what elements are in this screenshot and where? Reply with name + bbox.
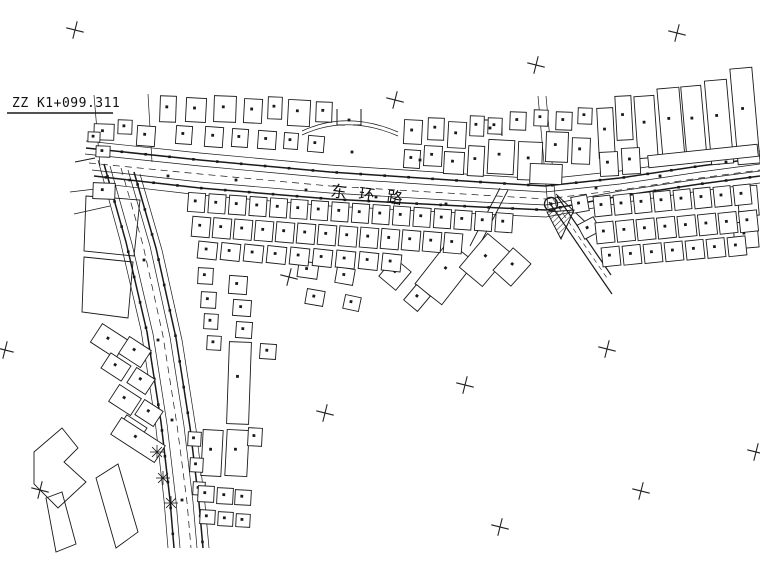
building-footprint — [228, 275, 247, 294]
building — [423, 146, 442, 167]
spot-dot — [595, 187, 598, 190]
building-dot — [92, 135, 95, 138]
building-dot — [440, 216, 443, 219]
curb-dot — [623, 176, 626, 179]
curb-dot — [288, 167, 291, 170]
building — [534, 110, 549, 126]
building-footprint — [621, 148, 640, 175]
building-dot — [282, 229, 285, 232]
building-footprint — [227, 342, 252, 425]
building — [413, 207, 431, 227]
curb-dot — [145, 326, 148, 329]
building-dot — [387, 236, 390, 239]
curb-dot — [646, 173, 649, 176]
building — [443, 151, 464, 174]
survey-cross — [596, 338, 618, 360]
building-footprint — [601, 246, 621, 267]
building — [233, 219, 253, 240]
building-dot — [690, 117, 693, 120]
curb-dot — [169, 309, 172, 312]
building-dot — [715, 114, 718, 117]
building-dot — [288, 138, 291, 141]
building-footprint — [296, 223, 316, 244]
building-footprint — [599, 152, 618, 177]
building-dot — [303, 231, 306, 234]
building-dot — [305, 267, 308, 270]
building-footprint — [231, 128, 248, 147]
building-dot — [603, 128, 606, 131]
building — [422, 231, 442, 252]
building-footprint — [392, 206, 410, 226]
building — [593, 195, 612, 217]
building-dot — [378, 212, 381, 215]
curb-dot — [407, 176, 410, 179]
cross-arm — [747, 450, 760, 454]
spot-dot — [375, 196, 378, 199]
curb-dot — [157, 258, 160, 261]
building — [254, 220, 274, 241]
survey-cross — [745, 441, 760, 463]
building-dot — [101, 129, 104, 132]
spot-dot — [167, 175, 170, 178]
building — [338, 226, 358, 247]
spot-dot — [659, 175, 662, 178]
building-dot — [240, 226, 243, 229]
building-footprint — [175, 125, 192, 144]
building — [227, 342, 252, 425]
building — [467, 146, 485, 177]
cad-plan-canvas: ZZ K1+099.311 东 环 路 — [0, 0, 760, 565]
building — [621, 148, 640, 175]
building-footprint — [208, 194, 226, 214]
building-dot — [214, 201, 217, 204]
building-dot — [313, 141, 316, 144]
building — [392, 206, 410, 226]
building-dot — [741, 107, 744, 110]
building — [643, 243, 663, 264]
building-dot — [492, 123, 495, 126]
building-footprint — [495, 213, 513, 233]
building-footprint — [372, 205, 390, 225]
building-dot — [143, 133, 146, 136]
building — [236, 514, 251, 528]
building-dot — [342, 273, 345, 276]
building-footprint — [191, 216, 211, 237]
building-footprint — [351, 203, 369, 223]
building-footprint — [422, 231, 442, 252]
building — [447, 122, 466, 149]
building-footprint — [269, 198, 287, 218]
curb-dot — [144, 208, 147, 211]
building-dot — [498, 153, 501, 156]
building-footprint — [305, 289, 325, 307]
building — [656, 216, 676, 239]
building-footprint — [413, 207, 431, 227]
curb-dot — [164, 455, 167, 458]
building-dot — [399, 213, 402, 216]
building — [733, 184, 752, 206]
building-footprint — [428, 118, 445, 141]
building-footprint — [403, 120, 422, 145]
traffic-island-hatch — [547, 210, 574, 239]
building — [359, 227, 379, 248]
building-dot — [739, 192, 742, 195]
building-dot — [297, 253, 300, 256]
building-footprint — [228, 195, 246, 215]
building-footprint — [447, 122, 466, 149]
building — [191, 216, 211, 237]
building — [433, 209, 451, 229]
building-footprint — [403, 149, 420, 168]
building-footprint — [335, 250, 356, 269]
building-footprint — [657, 87, 685, 161]
curb-dot — [172, 533, 175, 536]
building-dot — [209, 448, 212, 451]
building — [335, 250, 356, 269]
building — [218, 512, 234, 527]
building — [204, 126, 223, 147]
spot-dot — [489, 127, 492, 130]
building-footprint — [443, 232, 463, 253]
building-dot — [101, 188, 104, 191]
road-name-char: 环 — [357, 184, 376, 205]
building-dot — [324, 232, 327, 235]
curb-dot — [161, 429, 164, 432]
building — [657, 87, 685, 161]
building — [713, 186, 732, 208]
building-dot — [222, 105, 225, 108]
building-dot — [699, 195, 702, 198]
building-footprint — [597, 108, 616, 159]
building-dot — [366, 235, 369, 238]
cross-arm — [0, 348, 14, 352]
building-dot — [515, 118, 518, 121]
building-dot — [602, 229, 605, 232]
building-dot — [619, 201, 622, 204]
building-dot — [240, 495, 243, 498]
building-footprint — [316, 102, 333, 123]
building-footprint — [656, 216, 676, 239]
curb-dot — [216, 160, 219, 163]
building-footprint — [530, 163, 563, 184]
building-dot — [203, 491, 206, 494]
building-footprint — [310, 201, 328, 221]
building-dot — [745, 218, 748, 221]
building — [428, 118, 445, 141]
survey-cross — [454, 374, 476, 396]
building — [257, 130, 276, 149]
building-footprint — [738, 210, 758, 233]
building-dot — [255, 203, 258, 206]
road-edge-line — [74, 206, 110, 214]
curb-dot — [144, 153, 147, 156]
building — [474, 211, 492, 231]
curb-dot — [182, 386, 185, 389]
building-dot — [343, 256, 346, 259]
building-footprint — [677, 215, 697, 238]
building — [331, 202, 349, 222]
building-dot — [643, 226, 646, 229]
spot-dot — [348, 119, 351, 122]
building — [207, 336, 222, 351]
building-dot — [223, 516, 226, 519]
building — [615, 96, 633, 141]
building-footprint — [433, 209, 451, 229]
building — [613, 194, 632, 216]
building-dot — [345, 233, 348, 236]
building — [232, 299, 251, 316]
building-dot — [349, 300, 352, 303]
curb-dot — [176, 184, 179, 187]
building-footprint — [401, 230, 421, 251]
curb-dot — [178, 360, 181, 363]
building — [633, 192, 652, 214]
building — [290, 199, 308, 219]
building-dot — [100, 149, 103, 152]
building-dot — [237, 135, 240, 138]
building-dot — [205, 514, 208, 517]
building-dot — [408, 237, 411, 240]
building-dot — [667, 117, 670, 120]
building — [403, 120, 422, 145]
building-dot — [366, 258, 369, 261]
building-footprint — [287, 99, 310, 126]
building-dot — [684, 223, 687, 226]
building — [249, 196, 267, 216]
building — [673, 189, 692, 211]
building-dot — [194, 199, 197, 202]
building-footprint — [474, 211, 492, 231]
building — [275, 222, 295, 243]
building-footprint — [693, 187, 712, 209]
building-dot — [193, 107, 196, 110]
curb-dot — [575, 181, 578, 184]
curb-dot — [186, 411, 189, 414]
building-dot — [206, 297, 209, 300]
curb-dot — [157, 403, 160, 406]
building-dot — [599, 203, 602, 206]
survey-cross — [0, 339, 16, 361]
curb-dot — [127, 250, 130, 253]
drawing-viewport: ZZ K1+099.311 东 环 路 — [0, 0, 760, 565]
building — [235, 321, 252, 338]
building-dot — [208, 319, 211, 322]
building-footprint — [233, 219, 253, 240]
building-dot — [481, 218, 484, 221]
building — [225, 429, 249, 476]
building-footprint — [331, 202, 349, 222]
curb-dot — [701, 182, 704, 185]
curb-dot — [455, 179, 458, 182]
building-dot — [606, 161, 609, 164]
building — [372, 205, 390, 225]
building — [510, 112, 527, 131]
building-dot — [265, 349, 268, 352]
building-dot — [650, 250, 653, 253]
building — [615, 220, 635, 243]
building — [597, 108, 616, 159]
tree-symbol — [150, 445, 164, 459]
building-dot — [272, 105, 275, 108]
building-dot — [274, 252, 277, 255]
building-dot — [276, 205, 279, 208]
building-dot — [679, 197, 682, 200]
survey-cross — [314, 402, 336, 424]
building-dot — [228, 249, 231, 252]
building — [599, 152, 618, 177]
curb-dot — [677, 186, 680, 189]
road-name-char: 路 — [385, 187, 404, 208]
survey-cross — [630, 480, 652, 502]
building-dot — [198, 224, 201, 227]
building-footprint — [248, 428, 263, 447]
curb-dot — [120, 225, 123, 228]
building — [197, 241, 218, 260]
building-footprint — [673, 189, 692, 211]
building — [305, 289, 325, 307]
building — [307, 135, 324, 152]
building-dot — [264, 137, 267, 140]
curb-dot — [139, 301, 142, 304]
tree-symbol — [164, 496, 178, 510]
building-dot — [235, 282, 238, 285]
building-dot — [312, 294, 315, 297]
building-dot — [501, 220, 504, 223]
curb-dot — [535, 208, 538, 211]
building-dot — [454, 131, 457, 134]
parcel-outline — [82, 257, 133, 318]
building — [530, 163, 563, 184]
building-footprint — [643, 243, 663, 264]
building — [208, 194, 226, 214]
building-footprint — [185, 97, 206, 122]
bracket-symbol — [353, 109, 361, 125]
curb-dot — [463, 205, 466, 208]
curb-dot — [312, 169, 315, 172]
spot-dot — [351, 151, 354, 154]
building-dot — [239, 305, 242, 308]
building — [403, 149, 420, 168]
spot-dot — [157, 339, 160, 342]
building-footprint — [225, 429, 249, 476]
building-dot — [608, 254, 611, 257]
building — [259, 343, 276, 359]
curb-dot — [248, 191, 251, 194]
building-footprint — [706, 238, 726, 259]
curb-dot — [192, 158, 195, 161]
building — [287, 99, 310, 126]
spot-dot — [171, 419, 174, 422]
curb-dot — [749, 176, 752, 179]
building — [266, 246, 287, 265]
building-dot — [250, 108, 253, 111]
building-dot — [629, 252, 632, 255]
building — [495, 213, 513, 233]
building-footprint — [454, 210, 472, 230]
building — [572, 138, 591, 165]
building-footprint — [615, 96, 633, 141]
building — [335, 267, 356, 286]
building-dot — [251, 250, 254, 253]
building-footprint — [317, 224, 337, 245]
building-footprint — [243, 244, 264, 263]
building-dot — [234, 448, 237, 451]
building — [269, 198, 287, 218]
building — [316, 102, 333, 123]
building-footprint — [204, 126, 223, 147]
building-footprint — [487, 139, 515, 174]
building-dot — [582, 113, 585, 116]
curb-dot — [439, 204, 442, 207]
building-footprint — [636, 218, 656, 241]
curb-dot — [136, 183, 139, 186]
building-dot — [460, 217, 463, 220]
building-dot — [235, 202, 238, 205]
building — [198, 486, 215, 503]
building-dot — [473, 157, 476, 160]
building-footprint — [232, 299, 251, 316]
spot-dot — [181, 499, 184, 502]
survey-cross — [525, 54, 547, 76]
building-dot — [296, 206, 299, 209]
curb-dot — [121, 150, 124, 153]
building — [235, 490, 252, 506]
curb-dot — [151, 233, 154, 236]
building-dot — [704, 221, 707, 224]
building-footprint — [423, 146, 442, 167]
building — [727, 236, 747, 257]
building-footprint — [197, 241, 218, 260]
building-footprint — [613, 194, 632, 216]
building-footprint — [359, 227, 379, 248]
curb-dot — [359, 173, 362, 176]
building-dot — [321, 109, 324, 112]
curb-dot — [168, 155, 171, 158]
building-footprint — [257, 130, 276, 149]
building-footprint — [470, 116, 485, 136]
building-footprint — [268, 97, 283, 119]
building-footprint — [727, 236, 747, 257]
building-footprint — [201, 430, 223, 477]
building-dot — [538, 115, 541, 118]
building — [201, 430, 223, 477]
building-dot — [192, 436, 195, 439]
building-footprint — [443, 151, 464, 174]
building-footprint — [545, 132, 568, 163]
building-dot — [165, 105, 168, 108]
building-dot — [725, 220, 728, 223]
building-footprint — [254, 220, 274, 241]
building — [380, 228, 400, 249]
building — [243, 99, 262, 124]
building-footprint — [713, 186, 732, 208]
building-dot — [296, 109, 299, 112]
building-dot — [181, 132, 184, 135]
building-dot — [122, 124, 125, 127]
building-dot — [205, 247, 208, 250]
building-footprint — [556, 112, 573, 131]
building-footprint — [718, 212, 738, 235]
building-footprint — [633, 192, 652, 214]
building-dot — [554, 143, 557, 146]
building-footprint — [335, 267, 356, 286]
building-dot — [211, 134, 214, 137]
building-dot — [622, 228, 625, 231]
curb-dot — [479, 181, 482, 184]
building-dot — [203, 273, 206, 276]
curb-dot — [201, 541, 204, 544]
building-dot — [219, 225, 222, 228]
